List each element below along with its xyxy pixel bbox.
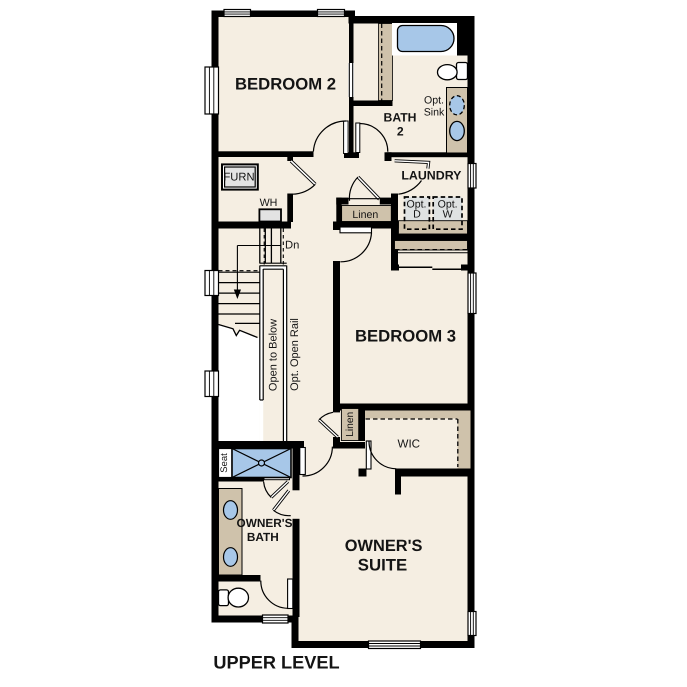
- svg-text:BATH: BATH: [384, 111, 417, 125]
- svg-text:W: W: [443, 209, 453, 221]
- svg-text:OWNER'S: OWNER'S: [237, 516, 293, 530]
- svg-text:D: D: [413, 209, 421, 221]
- svg-text:Open to Below: Open to Below: [267, 319, 279, 391]
- svg-text:Seat: Seat: [219, 453, 230, 473]
- svg-text:Sink: Sink: [424, 106, 445, 118]
- svg-text:FURN: FURN: [223, 171, 254, 183]
- svg-text:WH: WH: [260, 197, 278, 209]
- svg-text:2: 2: [397, 125, 404, 139]
- svg-text:Dn: Dn: [285, 239, 299, 251]
- svg-text:WIC: WIC: [398, 437, 421, 450]
- svg-text:LAUNDRY: LAUNDRY: [401, 169, 462, 183]
- svg-text:SUITE: SUITE: [358, 555, 407, 574]
- svg-text:Opt. Open Rail: Opt. Open Rail: [289, 318, 301, 391]
- svg-text:BATH: BATH: [247, 530, 279, 544]
- svg-text:OWNER'S: OWNER'S: [345, 537, 423, 555]
- svg-text:UPPER LEVEL: UPPER LEVEL: [213, 652, 339, 672]
- svg-text:BEDROOM 2: BEDROOM 2: [235, 75, 336, 94]
- svg-text:Opt.: Opt.: [424, 94, 444, 106]
- svg-text:BEDROOM 3: BEDROOM 3: [355, 327, 456, 346]
- svg-text:Linen: Linen: [345, 412, 356, 437]
- svg-text:Linen: Linen: [352, 209, 378, 221]
